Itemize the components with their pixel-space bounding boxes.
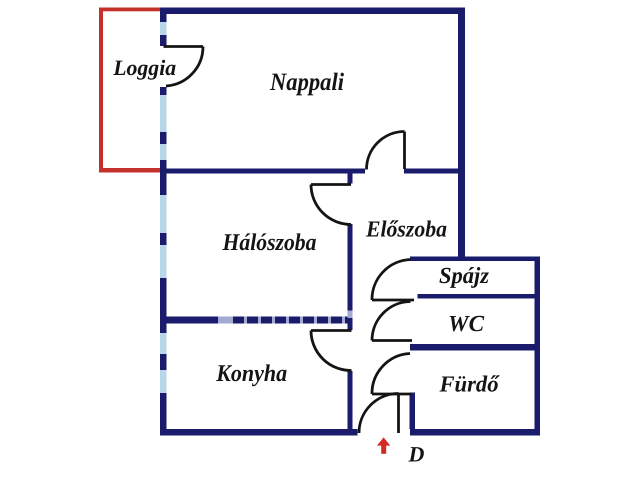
- svg-text:Előszoba: Előszoba: [365, 217, 447, 242]
- svg-text:Nappali: Nappali: [269, 69, 344, 96]
- svg-text:Hálószoba: Hálószoba: [222, 230, 317, 256]
- svg-text:Loggia: Loggia: [112, 55, 176, 80]
- svg-text:Fürdő: Fürdő: [439, 372, 500, 397]
- svg-text:Konyha: Konyha: [215, 361, 287, 387]
- svg-text:Spájz: Spájz: [439, 263, 489, 288]
- svg-text:WC: WC: [448, 311, 485, 336]
- svg-text:D: D: [408, 442, 425, 467]
